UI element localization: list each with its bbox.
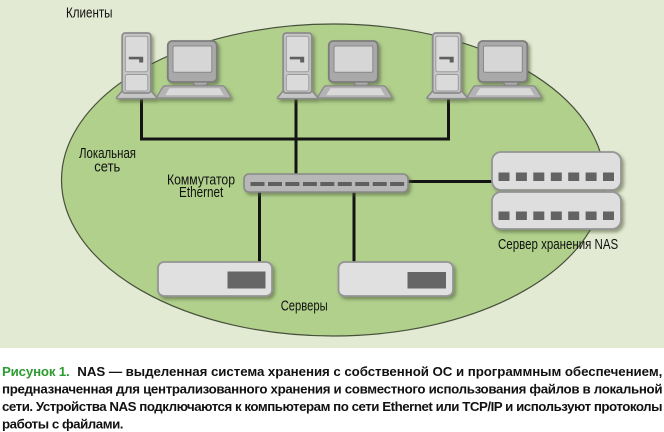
- svg-text:Клиенты: Клиенты: [66, 6, 113, 22]
- svg-text:сеть: сеть: [94, 159, 120, 175]
- svg-text:Сервер хранения NAS: Сервер хранения NAS: [498, 237, 618, 253]
- svg-text:Ethernet: Ethernet: [179, 185, 223, 201]
- svg-text:предназначенная для централизо: предназначенная для централизованного хр…: [2, 381, 663, 396]
- svg-text:NAS — выделенная система хране: NAS — выделенная система хранения с собс…: [77, 364, 662, 379]
- svg-text:сети. Устройства NAS подключаю: сети. Устройства NAS подключаются к комп…: [2, 399, 663, 414]
- svg-text:Серверы: Серверы: [281, 299, 328, 315]
- svg-text:работы с файлами.: работы с файлами.: [2, 416, 124, 431]
- svg-text:Рисунок 1.: Рисунок 1.: [2, 364, 70, 379]
